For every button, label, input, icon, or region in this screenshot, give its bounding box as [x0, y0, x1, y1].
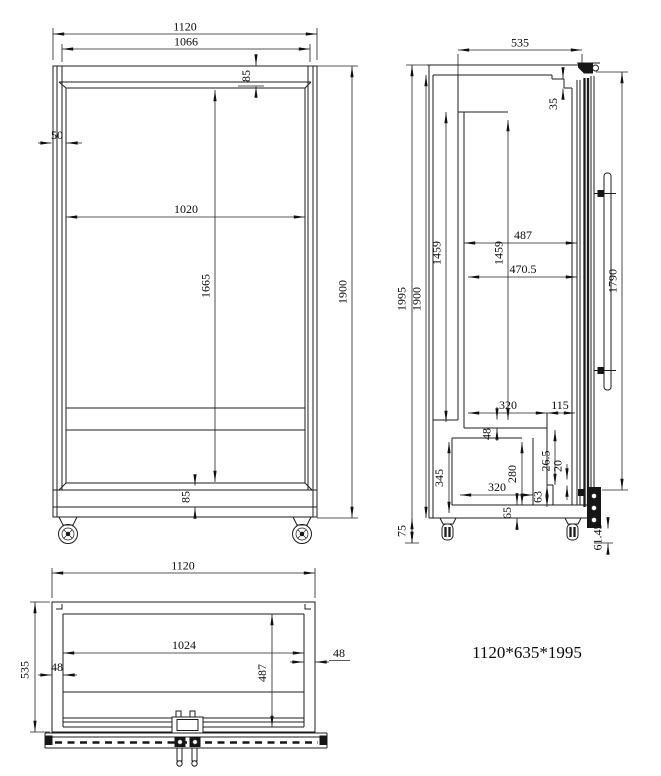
dim-side-shelf-depth: 470.5 — [510, 262, 537, 276]
bottom-view: 1120 1024 48 48 535 487 — [18, 559, 351, 767]
side-caster-right — [565, 518, 581, 540]
dim-side-machine-inner-height: 280 — [505, 465, 519, 483]
bottom-view-dimensions: 1120 1024 48 48 535 487 — [18, 559, 351, 733]
dim-front-top-inner-width: 1066 — [174, 35, 198, 49]
dim-bottom-inner-depth: 487 — [255, 664, 269, 682]
dim-side-cavity-height-front: 1459 — [492, 241, 506, 265]
dim-bottom-overall-depth: 535 — [18, 661, 32, 679]
dim-side-door-bottom-gap: 20 — [551, 460, 565, 472]
dim-side-machine-top-width: 320 — [499, 398, 517, 412]
bottom-center-hinge — [172, 711, 203, 766]
dim-side-base-front-height: 63 — [531, 491, 545, 503]
front-view-outline — [53, 66, 317, 544]
dim-front-bottom-frame: 85 — [179, 491, 193, 503]
dim-side-door-top-gap: 35 — [546, 98, 560, 110]
bottom-view-outline — [45, 602, 327, 766]
dim-front-left-frame: 50 — [51, 128, 63, 142]
dim-front-glass-width: 1020 — [174, 202, 198, 216]
dim-side-body-height: 1900 — [410, 287, 424, 311]
front-caster-left — [59, 517, 78, 544]
technical-drawing-canvas: 1120 1066 85 50 1020 1665 1900 85 — [0, 0, 661, 776]
dim-side-top-depth: 535 — [511, 36, 529, 50]
dim-bottom-inner-width: 1024 — [172, 638, 196, 652]
dim-bottom-overall-width: 1120 — [171, 559, 195, 573]
dim-side-overall-height: 1995 — [395, 287, 409, 311]
overall-size-note: 1120*635*1995 — [472, 643, 582, 662]
dim-front-glass-height: 1665 — [199, 274, 213, 298]
dim-bottom-right-wall: 48 — [333, 646, 345, 660]
dim-side-cavity-depth: 487 — [514, 228, 532, 242]
dim-side-floor-step: 48 — [480, 428, 494, 440]
side-bottom-hinge — [578, 487, 601, 528]
dim-side-door-height: 1790 — [606, 269, 620, 293]
dim-side-machine-bottom-width: 320 — [488, 480, 506, 494]
dim-front-body-height: 1900 — [336, 280, 350, 304]
side-view-dimensions: 535 35 1459 1459 487 470.5 1790 1995 190… — [395, 36, 629, 555]
dim-side-machine-front-offset: 115 — [551, 398, 569, 412]
side-view: 535 35 1459 1459 487 470.5 1790 1995 190… — [395, 36, 629, 555]
dim-side-hinge-bottom-height: 61.45 — [591, 524, 605, 551]
dim-side-cavity-height-back: 1459 — [430, 241, 444, 265]
front-caster-right — [293, 517, 312, 544]
drawing-sheet: 1120 1066 85 50 1020 1665 1900 85 — [0, 0, 661, 776]
side-caster-left — [440, 518, 456, 540]
dim-front-overall-width: 1120 — [173, 20, 197, 34]
dim-side-machine-height: 345 — [432, 469, 446, 487]
dim-side-caster-height: 75 — [395, 525, 409, 537]
dim-side-base-bottom-height: 65 — [500, 507, 514, 519]
side-top-hinge — [578, 63, 599, 74]
front-view: 1120 1066 85 50 1020 1665 1900 85 — [38, 20, 358, 544]
side-view-outline — [427, 63, 616, 540]
dim-bottom-left-wall: 48 — [51, 660, 63, 674]
dim-front-top-frame: 85 — [239, 70, 253, 82]
front-view-dimensions: 1120 1066 85 50 1020 1665 1900 85 — [38, 20, 358, 519]
